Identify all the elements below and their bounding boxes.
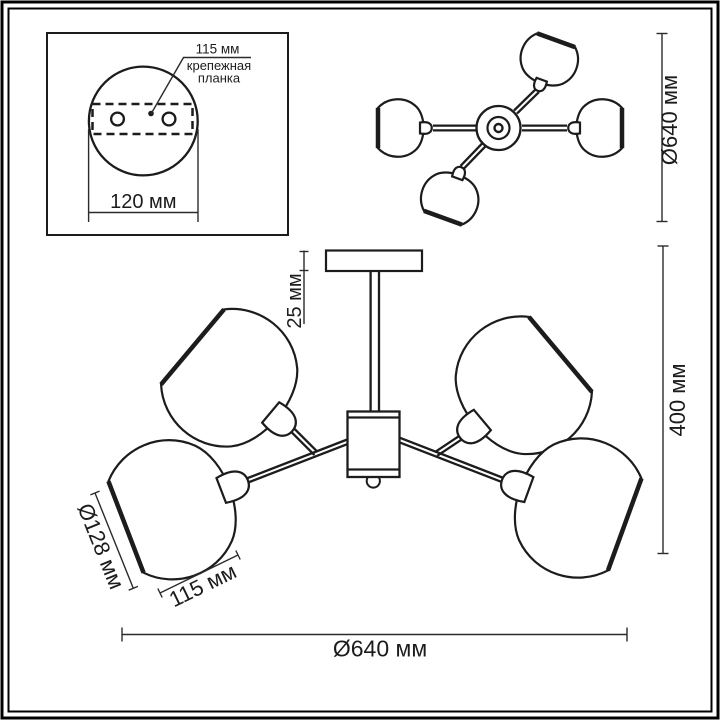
central-body — [348, 412, 400, 478]
drawing-canvas: 115 мм крепежная планка 120 мм Ø640 мм — [0, 0, 720, 720]
chandelier-dimension-drawing: 115 мм крепежная планка 120 мм Ø640 мм — [0, 0, 720, 720]
label-bracket-line2: планка — [198, 71, 241, 86]
top-view: Ø640 мм — [378, 30, 682, 227]
lamp-shade-top-view-right — [568, 99, 622, 157]
lamp-shade-top-view-upper — [511, 30, 583, 100]
label-fixture-diameter: Ø640 мм — [333, 636, 427, 662]
ceiling-plate — [326, 251, 422, 272]
arm-upper-left — [293, 427, 318, 452]
arm-upper-left — [290, 431, 315, 456]
label-top-view-diameter: Ø640 мм — [657, 75, 682, 165]
mounting-inset: 115 мм крепежная планка 120 мм — [47, 33, 288, 235]
lamp-shade-top-view-lower — [416, 157, 488, 227]
label-hole-spacing: 115 мм — [196, 42, 240, 57]
lamp-shade-top-view-left — [378, 99, 432, 157]
arm-lower — [464, 146, 486, 169]
label-canopy-drop: 25 мм — [284, 273, 306, 328]
main-view: 25 мм 400 мм Ø128 мм 115 мм Ø640 мм — [72, 246, 690, 662]
arm-lower-left — [245, 440, 347, 480]
arm-lower-left — [247, 444, 349, 483]
label-plate-width: 120 мм — [110, 191, 176, 213]
arm-lower-right — [399, 442, 504, 483]
arm-lower-right — [400, 438, 505, 479]
hub-center-hole — [495, 124, 503, 132]
label-fixture-height: 400 мм — [665, 363, 690, 436]
arm-lower — [461, 143, 483, 166]
